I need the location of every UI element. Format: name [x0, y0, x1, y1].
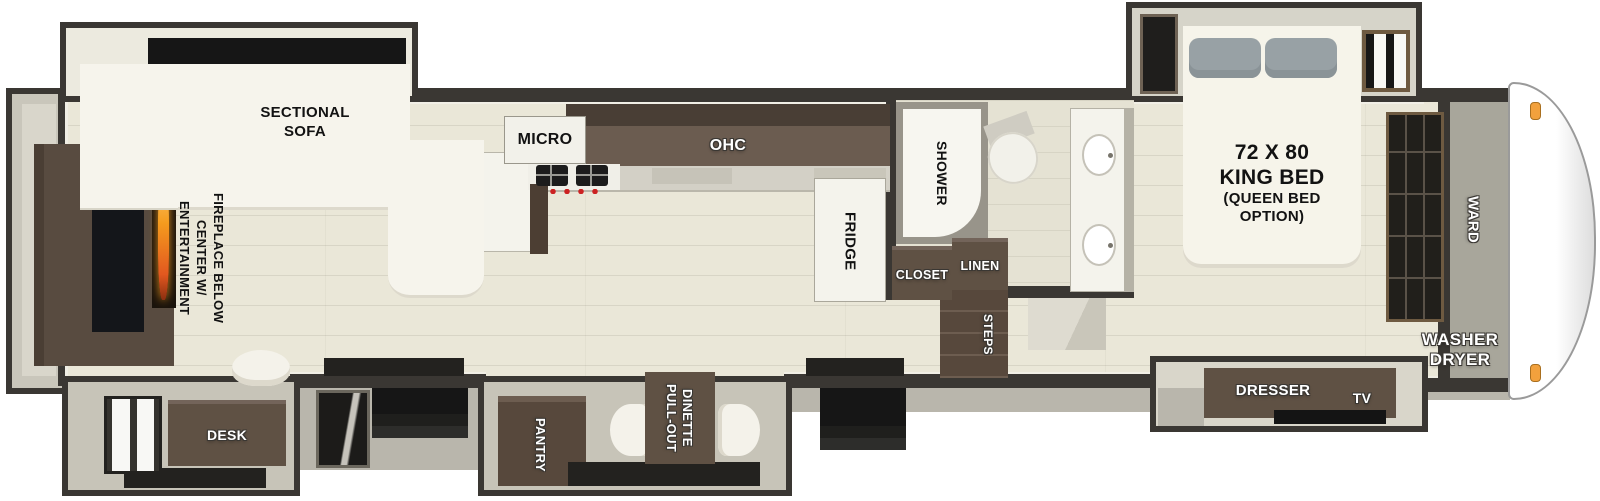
- bedroom-window: [1362, 30, 1410, 92]
- slide-topper-awning: [148, 38, 406, 64]
- clearance-light-top: [1530, 102, 1541, 120]
- overhead-cabinet-top: [566, 104, 890, 126]
- steps-platform: STEPS: [940, 290, 1008, 378]
- desk: DESK: [168, 400, 286, 466]
- vent-hood: [652, 168, 732, 184]
- dinette-chair-right: [718, 404, 760, 456]
- exterior-window-left: [316, 390, 370, 468]
- faucet-dot: [1108, 153, 1113, 158]
- king-bed-label: 72 X 80 KING BED (QUEEN BED OPTION): [1180, 130, 1364, 236]
- fridge-top: [814, 168, 886, 178]
- rv-floorplan: ENTERTAINMENT CENTER W/ FIREPLACE BELOW …: [0, 0, 1600, 501]
- entertainment-center-label: ENTERTAINMENT CENTER W/ FIREPLACE BELOW: [176, 152, 234, 364]
- tv-label: TV: [1342, 390, 1382, 406]
- desk-label: DESK: [207, 427, 247, 443]
- bed-option-label-2: OPTION): [1240, 208, 1305, 226]
- fridge-label: FRIDGE: [841, 185, 859, 297]
- burner-grate-left: [536, 165, 568, 186]
- hall-step-up: [1028, 298, 1106, 350]
- pull-out-dinette-table: PULL-OUT DINETTE: [645, 372, 715, 464]
- micro-label: MICRO: [518, 131, 573, 149]
- entry-mat-main: [324, 358, 464, 376]
- wardrobe-mirror-doors: [1386, 112, 1444, 322]
- linen-cabinet: LINEN: [952, 238, 1008, 290]
- vanity-sink-2: [1082, 224, 1116, 266]
- kitchen-sink-counter: [478, 152, 532, 252]
- desk-window: [104, 396, 162, 474]
- steps-label: STEPS: [980, 294, 996, 374]
- closet-label: CLOSET: [896, 268, 949, 282]
- bed-option-label-1: (QUEEN BED: [1223, 190, 1320, 208]
- front-top-wall: [1416, 88, 1512, 102]
- faucet-dot: [1108, 243, 1113, 248]
- microwave: MICRO: [504, 116, 586, 164]
- dresser-slide-exterior-wedge: [1158, 388, 1204, 426]
- burner-grate-right: [576, 165, 608, 186]
- pantry-label: PANTRY: [532, 406, 550, 484]
- ohc-label: OHC: [710, 137, 746, 155]
- bed-size-label: 72 X 80: [1235, 140, 1310, 165]
- shower: SHOWER: [896, 102, 988, 244]
- entry-steps-bedroom: [820, 384, 906, 450]
- front-cap: [1508, 82, 1596, 400]
- dresser-tv-screen: [1274, 410, 1386, 424]
- linen-label: LINEN: [961, 259, 1000, 273]
- bed-name-label: KING BED: [1219, 165, 1324, 190]
- dresser-slideout: DRESSER TV: [1150, 356, 1428, 432]
- dinette-mat: [568, 462, 760, 486]
- bed-pillow-right: [1265, 38, 1337, 78]
- desk-chair: [232, 350, 290, 386]
- pantry-dinette-room: PANTRY: [478, 376, 792, 496]
- entry-steps-main: [372, 384, 468, 438]
- refrigerator: FRIDGE: [814, 178, 886, 302]
- ward-label: WARD: [1464, 148, 1484, 292]
- vanity-sink-1: [1082, 134, 1116, 176]
- overhead-cabinet: OHC: [566, 126, 890, 166]
- sectional-sofa-label: SECTIONAL SOFA: [225, 98, 385, 146]
- bed-pillow-left: [1189, 38, 1261, 78]
- clearance-light-bottom: [1530, 364, 1541, 382]
- sectional-sofa-chaise: [388, 140, 484, 298]
- dresser-label: DRESSER: [1218, 382, 1328, 399]
- vanity-backsplash: [1124, 108, 1134, 292]
- shower-label: SHOWER: [934, 110, 952, 236]
- closet: CLOSET: [892, 246, 952, 300]
- range-knobs: [546, 189, 604, 194]
- entry-mat-bedroom: [806, 358, 904, 376]
- desk-room: DESK: [62, 376, 300, 496]
- washer-dryer-label: WASHER DRYER: [1402, 328, 1518, 372]
- front-bottom-wall: [1416, 378, 1512, 392]
- bed-slide-window-dark: [1140, 14, 1178, 94]
- cabinet-end-panel: [530, 184, 548, 254]
- pull-out-dinette-label: PULL-OUT DINETTE: [663, 376, 697, 460]
